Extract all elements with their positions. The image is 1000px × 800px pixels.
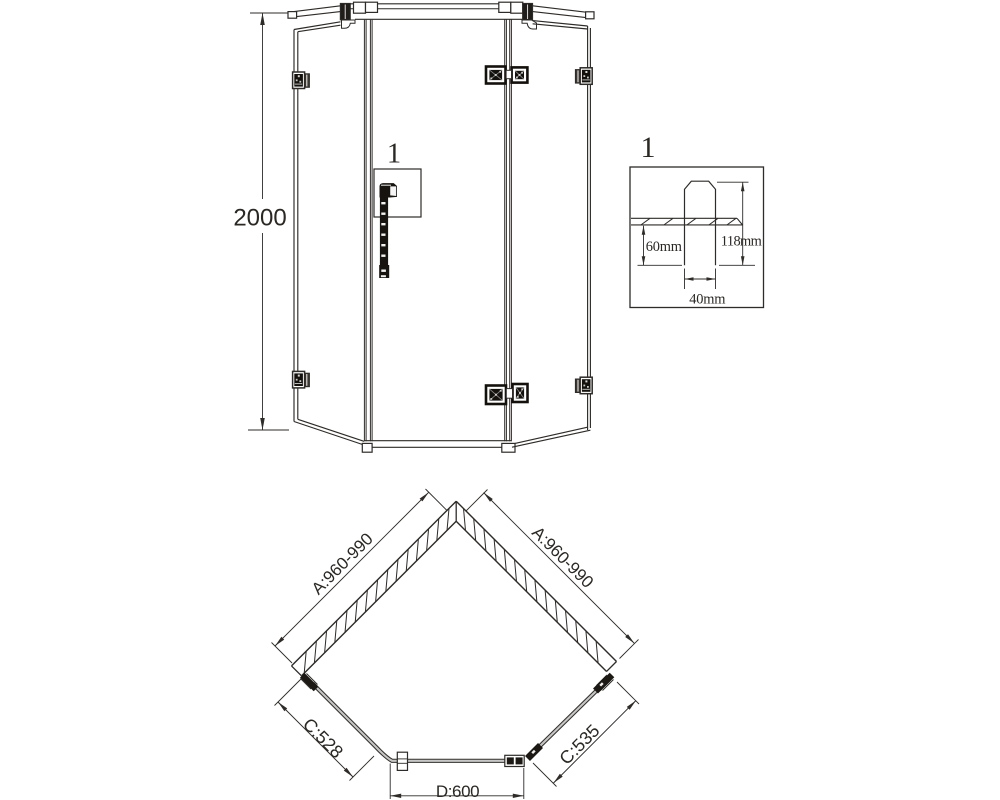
svg-text:D:600: D:600 bbox=[436, 782, 479, 800]
svg-text:1: 1 bbox=[387, 139, 401, 170]
svg-text:60mm: 60mm bbox=[646, 239, 682, 255]
svg-text:2000: 2000 bbox=[233, 205, 286, 232]
svg-text:1: 1 bbox=[641, 131, 656, 164]
svg-text:118mm: 118mm bbox=[721, 234, 762, 250]
svg-text:40mm: 40mm bbox=[689, 291, 725, 307]
